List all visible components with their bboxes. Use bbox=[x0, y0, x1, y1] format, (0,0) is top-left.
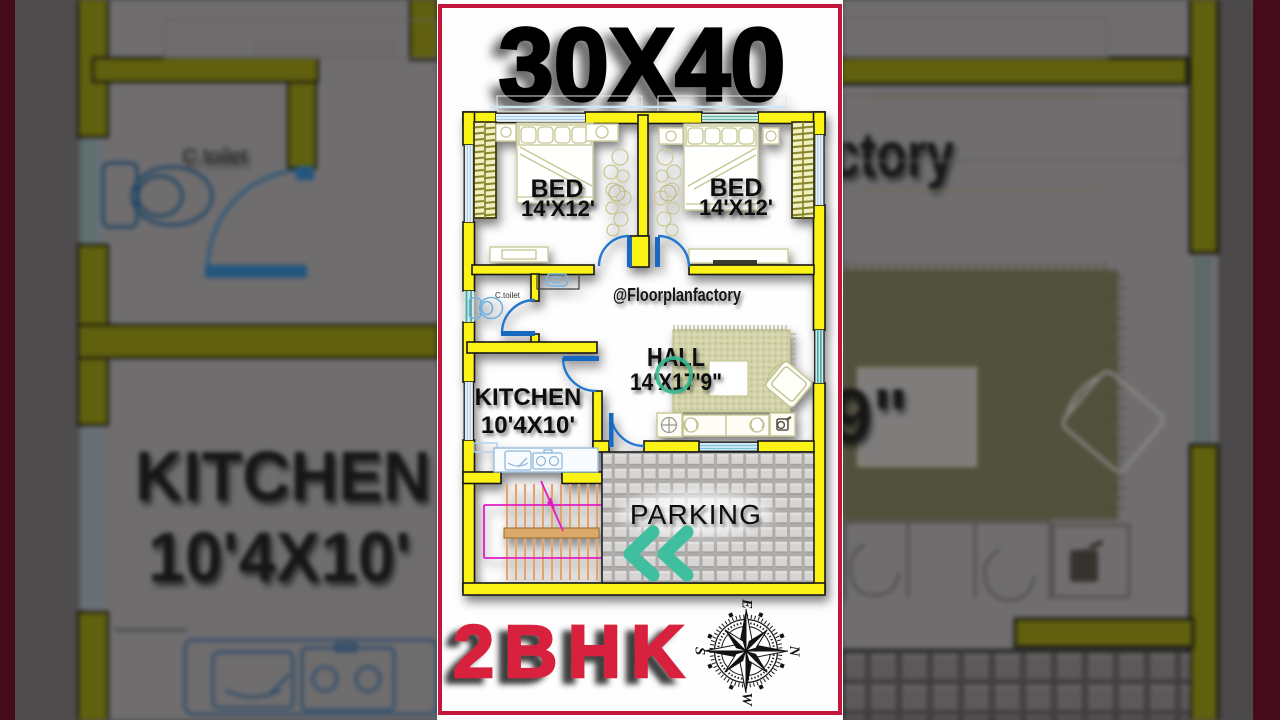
svg-text:W: W bbox=[739, 692, 755, 707]
svg-text:KITCHEN: KITCHEN bbox=[475, 384, 582, 411]
svg-text:14'X12': 14'X12' bbox=[521, 196, 595, 221]
svg-text:14'X12': 14'X12' bbox=[699, 195, 773, 220]
svg-text:2BHK: 2BHK bbox=[453, 610, 694, 693]
svg-text:N: N bbox=[786, 645, 802, 658]
svg-text:C.toilet: C.toilet bbox=[495, 291, 521, 300]
svg-text:S: S bbox=[692, 647, 708, 655]
svg-text:10'4X10': 10'4X10' bbox=[481, 412, 575, 439]
svg-text:E: E bbox=[739, 598, 755, 609]
svg-text:@Floorplanfactory: @Floorplanfactory bbox=[613, 285, 741, 305]
svg-text:PARKING: PARKING bbox=[630, 499, 762, 530]
